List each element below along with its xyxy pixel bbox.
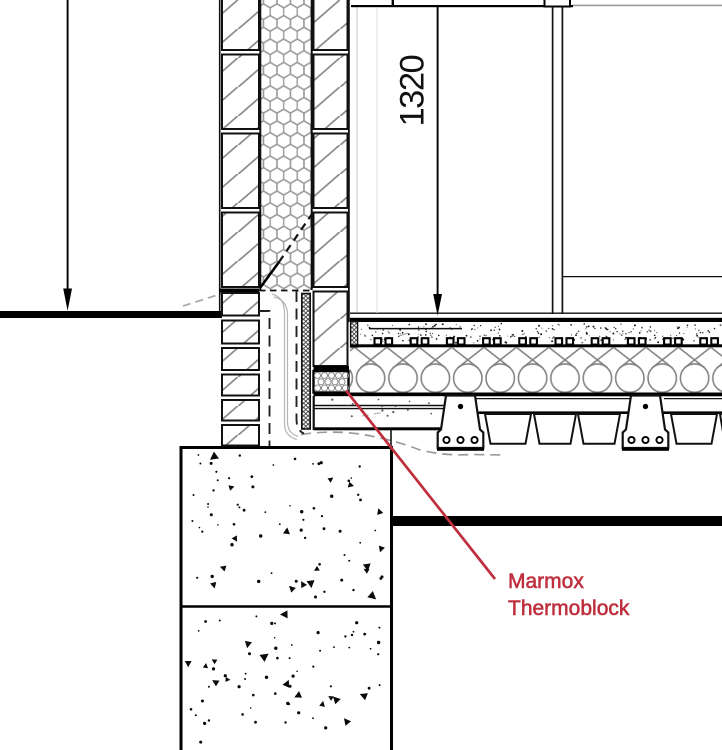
svg-text:Marmox: Marmox <box>508 570 584 593</box>
svg-text:Thermoblock: Thermoblock <box>508 597 630 620</box>
svg-text:1320: 1320 <box>394 55 432 126</box>
